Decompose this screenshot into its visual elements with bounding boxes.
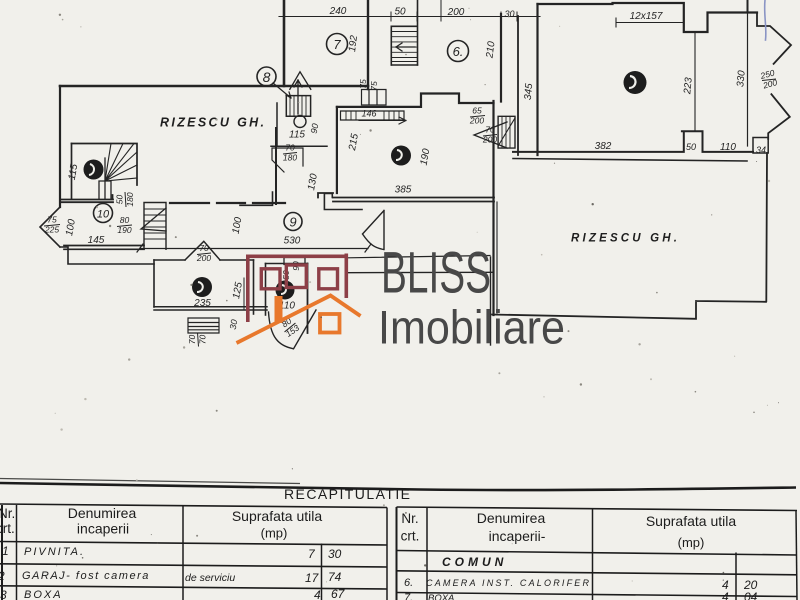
svg-text:Suprafata utila: Suprafata utila — [232, 508, 322, 524]
svg-text:6.: 6. — [404, 577, 413, 589]
svg-text:7: 7 — [333, 37, 341, 52]
svg-text:382: 382 — [595, 141, 612, 152]
svg-text:9: 9 — [289, 215, 296, 230]
svg-text:2: 2 — [0, 569, 5, 583]
svg-text:8: 8 — [263, 69, 271, 85]
svg-text:70: 70 — [199, 243, 209, 253]
svg-text:GARAJ- fost camera: GARAJ- fost camera — [22, 570, 150, 582]
svg-text:345: 345 — [523, 83, 535, 101]
svg-text:(mp): (mp) — [261, 526, 288, 541]
svg-text:240: 240 — [329, 6, 347, 17]
svg-text:146: 146 — [361, 109, 376, 119]
svg-text:7.: 7. — [404, 592, 413, 600]
svg-text:330: 330 — [735, 70, 747, 88]
svg-text:50: 50 — [115, 195, 125, 205]
svg-text:17: 17 — [305, 571, 320, 585]
svg-text:200: 200 — [447, 7, 465, 18]
svg-text:1: 1 — [2, 544, 9, 558]
svg-text:BLISS: BLISS — [381, 241, 491, 306]
svg-text:223: 223 — [682, 77, 695, 96]
svg-text:de serviciu: de serviciu — [185, 572, 235, 584]
svg-text:crt.: crt. — [0, 521, 15, 536]
svg-text:70: 70 — [485, 125, 495, 135]
svg-text:BOXA: BOXA — [24, 589, 63, 600]
svg-text:Denumirea: Denumirea — [68, 505, 137, 521]
svg-text:80: 80 — [120, 215, 130, 225]
svg-text:70: 70 — [187, 335, 197, 345]
svg-text:75: 75 — [47, 215, 57, 225]
svg-text:(mp): (mp) — [678, 535, 705, 550]
svg-text:Suprafata utila: Suprafata utila — [646, 513, 736, 529]
svg-text:67: 67 — [331, 587, 346, 600]
svg-text:crt.: crt. — [401, 529, 420, 544]
svg-text:4: 4 — [722, 590, 729, 600]
svg-text:75: 75 — [369, 81, 379, 91]
svg-text:6.: 6. — [453, 44, 464, 59]
svg-text:12x157: 12x157 — [630, 11, 663, 22]
svg-text:Nr.: Nr. — [401, 511, 418, 526]
svg-text:4: 4 — [314, 588, 321, 600]
svg-text:RECAPITULATIE: RECAPITULATIE — [284, 486, 410, 502]
svg-text:3: 3 — [0, 588, 7, 600]
svg-text:50: 50 — [686, 142, 696, 152]
svg-text:Imobiliare: Imobiliare — [378, 301, 565, 354]
svg-text:10: 10 — [97, 209, 110, 221]
svg-text:65: 65 — [472, 106, 482, 116]
svg-text:210: 210 — [484, 40, 497, 59]
svg-text:Denumirea: Denumirea — [477, 510, 546, 526]
svg-text:incaperii-: incaperii- — [489, 528, 546, 544]
svg-text:90: 90 — [309, 123, 321, 135]
svg-text:50: 50 — [394, 7, 406, 18]
svg-text:74: 74 — [328, 570, 342, 584]
svg-text:04: 04 — [744, 590, 758, 600]
svg-text:145: 145 — [88, 235, 105, 246]
svg-text:192: 192 — [347, 34, 360, 52]
svg-text:34: 34 — [756, 145, 766, 155]
svg-text:75: 75 — [358, 79, 368, 89]
svg-text:110: 110 — [720, 142, 736, 153]
svg-text:PIVNITA.: PIVNITA. — [24, 546, 85, 558]
svg-text:385: 385 — [395, 185, 412, 196]
svg-text:incaperii: incaperii — [77, 521, 129, 537]
svg-text:180: 180 — [125, 192, 135, 206]
svg-text:70: 70 — [198, 335, 208, 345]
svg-text:30: 30 — [228, 319, 240, 331]
svg-text:COMUN: COMUN — [442, 555, 507, 569]
svg-text:30: 30 — [504, 9, 514, 19]
svg-text:BOXA: BOXA — [428, 593, 454, 600]
svg-text:Nr.: Nr. — [0, 506, 15, 521]
svg-text:115: 115 — [289, 130, 305, 141]
svg-text:30: 30 — [328, 547, 342, 561]
svg-text:235: 235 — [193, 298, 211, 309]
svg-text:70: 70 — [285, 143, 295, 153]
svg-text:530: 530 — [284, 236, 301, 247]
